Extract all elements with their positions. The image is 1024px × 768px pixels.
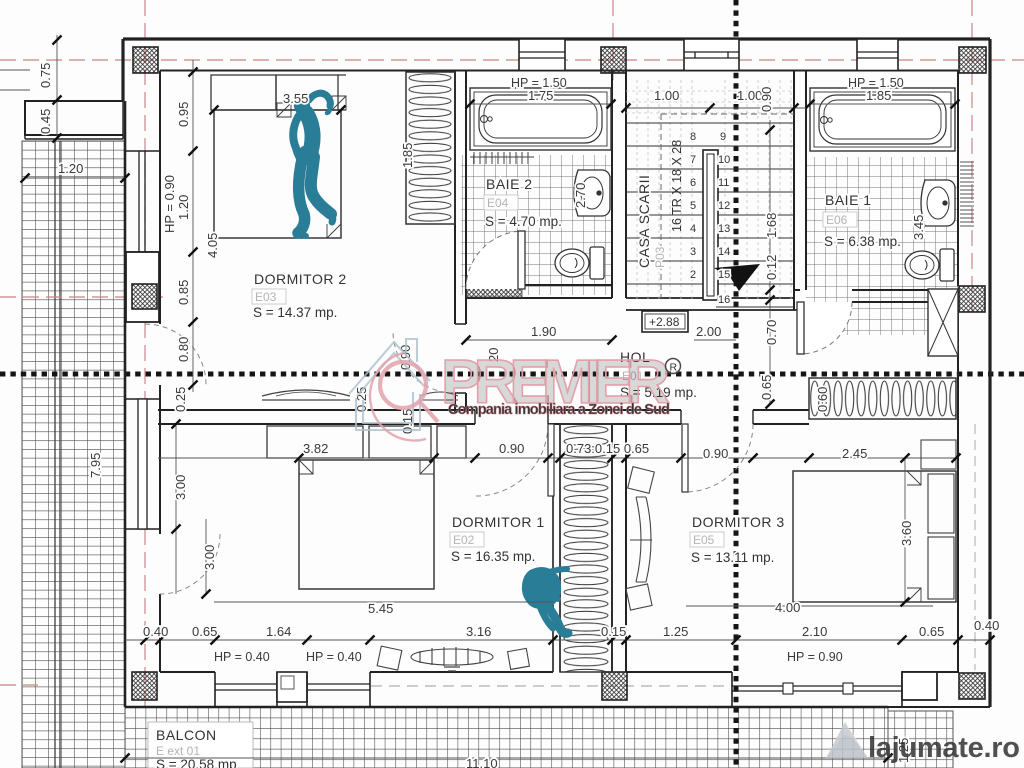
svg-text:3.60: 3.60 (899, 521, 914, 546)
svg-text:E06: E06 (826, 213, 848, 227)
svg-text:3.16: 3.16 (466, 624, 491, 639)
svg-text:DORMITOR 3: DORMITOR 3 (692, 514, 785, 530)
svg-text:1.20: 1.20 (58, 161, 83, 176)
svg-text:0.25: 0.25 (173, 387, 188, 412)
svg-text:0.80: 0.80 (176, 337, 191, 362)
svg-text:3.00: 3.00 (202, 545, 217, 570)
svg-text:R: R (670, 362, 678, 374)
svg-text:Compania imobiliara a Zonei de: Compania imobiliara a Zonei de Sud (448, 402, 670, 418)
svg-text:S = 4.70 mp.: S = 4.70 mp. (485, 214, 562, 229)
svg-text:4.05: 4.05 (205, 233, 220, 258)
svg-text:0.65: 0.65 (759, 375, 774, 400)
svg-text:8: 8 (690, 131, 696, 143)
svg-text:0.15: 0.15 (601, 624, 626, 639)
svg-text:1.85: 1.85 (400, 143, 415, 168)
svg-text:6: 6 (690, 177, 696, 189)
svg-text:0.65: 0.65 (919, 624, 944, 639)
svg-text:1.75: 1.75 (528, 88, 553, 103)
svg-text:lajumate.ro: lajumate.ro (868, 732, 1020, 764)
svg-text:E03: E03 (255, 290, 277, 304)
svg-text:0.85: 0.85 (176, 280, 191, 305)
svg-text:11: 11 (718, 177, 729, 189)
svg-text:S = 14.37 mp.: S = 14.37 mp. (253, 305, 337, 320)
svg-text:16 TR X 18 X 28: 16 TR X 18 X 28 (670, 140, 684, 232)
svg-text:4: 4 (690, 223, 696, 235)
svg-text:E02: E02 (453, 533, 475, 547)
svg-text:DORMITOR 1: DORMITOR 1 (452, 514, 545, 530)
svg-text:2.70: 2.70 (573, 183, 588, 208)
svg-text:9: 9 (720, 131, 726, 143)
svg-text:13: 13 (718, 223, 730, 235)
svg-text:5: 5 (690, 200, 696, 212)
svg-text:1.64: 1.64 (266, 624, 291, 639)
svg-text:15: 15 (718, 269, 730, 281)
svg-text:S = 20.58 mp: S = 20.58 mp (156, 757, 237, 768)
svg-text:BAIE 1: BAIE 1 (825, 192, 872, 208)
svg-text:HP = 0.40: HP = 0.40 (214, 650, 270, 664)
svg-text:0.75: 0.75 (38, 63, 53, 88)
svg-text:1.00: 1.00 (654, 88, 679, 103)
svg-text:HP = 0.90: HP = 0.90 (162, 175, 177, 233)
svg-text:2: 2 (690, 269, 696, 281)
svg-text:0.90: 0.90 (703, 446, 728, 461)
svg-text:HP = 0.90: HP = 0.90 (787, 650, 843, 664)
svg-text:P03: P03 (653, 246, 667, 268)
svg-text:0.90: 0.90 (759, 87, 774, 112)
svg-text:HP = 0.40: HP = 0.40 (306, 650, 362, 664)
svg-text:3.55: 3.55 (283, 91, 308, 106)
svg-text:0.65: 0.65 (192, 624, 217, 639)
svg-text:BALCON: BALCON (156, 727, 217, 743)
svg-text:0.70: 0.70 (764, 320, 779, 345)
svg-text:1.25: 1.25 (663, 624, 688, 639)
svg-text:7.95: 7.95 (88, 453, 103, 478)
svg-text:3.82: 3.82 (303, 441, 328, 456)
svg-text:11.10: 11.10 (466, 756, 498, 768)
svg-text:0.60: 0.60 (815, 387, 830, 412)
svg-text:0.12: 0.12 (764, 255, 779, 280)
svg-text:0.95: 0.95 (176, 102, 191, 127)
svg-text:5.45: 5.45 (368, 601, 393, 616)
svg-text:E ext 01: E ext 01 (156, 744, 200, 758)
svg-text:2.00: 2.00 (696, 324, 721, 339)
svg-text:CASA SCARII: CASA SCARII (636, 175, 652, 268)
svg-text:1.85: 1.85 (866, 88, 891, 103)
svg-text:BAIE 2: BAIE 2 (486, 176, 533, 192)
svg-text:S = 6.38 mp.: S = 6.38 mp. (824, 234, 901, 249)
svg-text:S = 13.11 mp.: S = 13.11 mp. (691, 550, 774, 565)
svg-text:0.40: 0.40 (974, 618, 999, 633)
svg-text:2.10: 2.10 (802, 624, 827, 639)
svg-text:12: 12 (718, 200, 730, 212)
svg-text:3: 3 (690, 246, 696, 258)
svg-text:0.73:0.15 0.65: 0.73:0.15 0.65 (566, 441, 649, 456)
svg-text:3.00: 3.00 (173, 475, 188, 500)
svg-text:1.90: 1.90 (531, 324, 556, 339)
svg-text:16: 16 (718, 294, 730, 306)
svg-text:7: 7 (690, 154, 696, 166)
svg-text:14: 14 (718, 246, 730, 258)
svg-text:2.45: 2.45 (842, 446, 867, 461)
svg-text:+2.88: +2.88 (649, 315, 680, 329)
svg-text:E05: E05 (693, 533, 715, 547)
svg-text:10: 10 (718, 154, 730, 166)
svg-text:3.45: 3.45 (911, 215, 926, 240)
svg-text:0.90: 0.90 (499, 441, 524, 456)
svg-text:1.20: 1.20 (176, 195, 191, 220)
svg-text:1.68: 1.68 (764, 213, 779, 238)
svg-text:S = 16.35 mp.: S = 16.35 mp. (451, 549, 535, 564)
svg-text:0.40: 0.40 (143, 624, 168, 639)
svg-text:DORMITOR 2: DORMITOR 2 (254, 271, 347, 287)
svg-text:4.00: 4.00 (775, 600, 800, 615)
svg-text:0.45: 0.45 (38, 109, 53, 134)
svg-text:E04: E04 (487, 196, 509, 210)
